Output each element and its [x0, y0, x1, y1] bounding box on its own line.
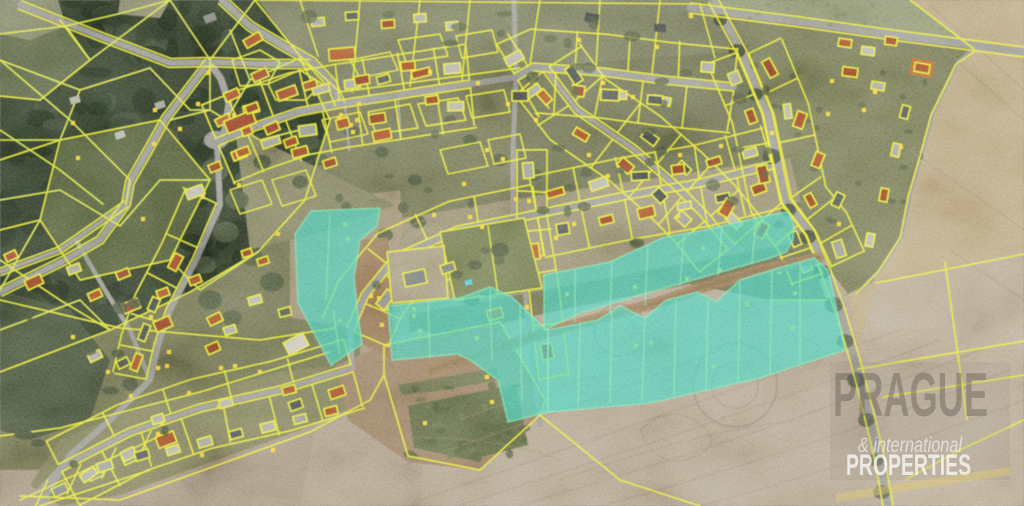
svg-text:PRAGUE: PRAGUE	[833, 361, 988, 430]
